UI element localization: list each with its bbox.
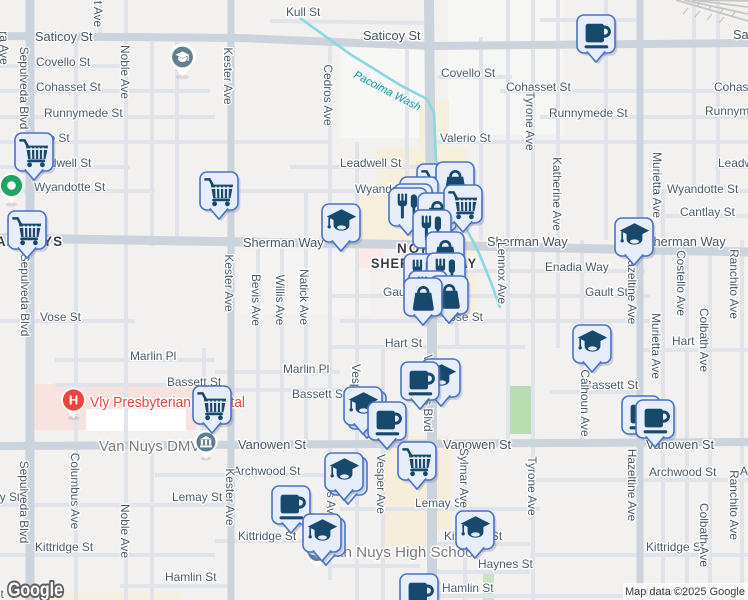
svg-text:Wyandotte St: Wyandotte St (34, 180, 106, 194)
svg-text:Hart St: Hart St (385, 336, 423, 350)
svg-text:Archwood St: Archwood St (649, 465, 717, 479)
svg-text:Bassett St: Bassett St (292, 387, 347, 401)
svg-text:Noble Ave: Noble Ave (118, 504, 132, 558)
svg-text:Saticoy St: Saticoy St (35, 29, 93, 44)
svg-text:Ranchito Ave: Ranchito Ave (727, 249, 741, 319)
svg-text:Saticoy St: Saticoy St (733, 27, 748, 42)
svg-text:Lemay St: Lemay St (172, 490, 223, 504)
svg-text:Enadia Way: Enadia Way (545, 260, 609, 274)
svg-text:Marlin Pl: Marlin Pl (283, 362, 329, 376)
svg-text:Kester Ave: Kester Ave (221, 47, 235, 105)
svg-text:Kester Ave: Kester Ave (223, 468, 237, 526)
svg-text:Cohasset St: Cohasset St (36, 80, 101, 94)
svg-text:Colbath Ave: Colbath Ave (697, 503, 711, 567)
svg-text:Valerio St: Valerio St (440, 131, 491, 145)
svg-text:Natick Ave: Natick Ave (297, 269, 311, 325)
svg-text:Kull St: Kull St (286, 5, 321, 19)
svg-text:Leadwell St: Leadwell St (340, 156, 402, 170)
svg-text:Covello St: Covello St (441, 66, 496, 80)
svg-text:Tyrone Ave: Tyrone Ave (523, 91, 537, 151)
svg-text:Tyrone Ave: Tyrone Ave (525, 456, 539, 516)
svg-text:Van Nuys High School: Van Nuys High School (326, 544, 477, 561)
svg-text:Saticoy St: Saticoy St (363, 28, 421, 43)
svg-text:Sepulveda Blvd: Sepulveda Blvd (17, 461, 31, 544)
svg-text:Vanowen St: Vanowen St (443, 437, 512, 452)
svg-text:Runnymede St: Runnymede St (44, 106, 123, 120)
svg-text:Sepulveda Blvd: Sepulveda Blvd (18, 254, 32, 337)
svg-text:Katherine Ave: Katherine Ave (550, 157, 564, 231)
svg-text:Costello Ave: Costello Ave (674, 250, 688, 316)
svg-text:Murietta Ave: Murietta Ave (650, 152, 664, 218)
svg-text:Hamlin St: Hamlin St (442, 581, 494, 595)
svg-text:Van Nuys DMV: Van Nuys DMV (99, 438, 200, 455)
svg-text:Colbath Ave: Colbath Ave (697, 308, 711, 372)
svg-text:Hamlin St: Hamlin St (165, 570, 217, 584)
svg-text:Sylmar Ave: Sylmar Ave (457, 448, 471, 508)
svg-text:Cohasset St: Cohasset St (714, 80, 748, 94)
svg-text:Cantlay St: Cantlay St (680, 205, 736, 219)
svg-text:t Ave: t Ave (91, 1, 105, 28)
svg-text:Bevis Ave: Bevis Ave (249, 274, 263, 326)
svg-text:Archwood St: Archwood St (233, 464, 301, 478)
svg-text:Kester Ave: Kester Ave (222, 254, 236, 312)
svg-text:Haynes St: Haynes St (478, 557, 534, 571)
svg-text:Sherman Way: Sherman Way (243, 235, 324, 250)
svg-text:Willis Ave: Willis Ave (273, 275, 287, 326)
svg-text:Cohasset St: Cohasset St (506, 80, 571, 94)
svg-text:Kittridge St: Kittridge St (35, 540, 94, 554)
svg-text:Sherman Way: Sherman Way (645, 234, 726, 249)
svg-text:Sepulveda Blvd: Sepulveda Blvd (17, 47, 31, 130)
svg-text:Calhoun Ave: Calhoun Ave (578, 369, 592, 437)
svg-text:Leadwell St: Leadwell St (718, 156, 748, 170)
svg-text:Marlin Pl: Marlin Pl (130, 349, 176, 363)
svg-text:Columbus Ave: Columbus Ave (68, 453, 82, 530)
svg-text:Runnymede St: Runnymede St (549, 106, 628, 120)
svg-text:Wyandotte St: Wyandotte St (667, 182, 739, 196)
svg-text:Runnymede St: Runnymede St (705, 104, 748, 118)
svg-text:Vesper Ave: Vesper Ave (374, 454, 388, 514)
svg-text:Google: Google (8, 579, 63, 600)
svg-text:Ranchito Ave: Ranchito Ave (727, 470, 741, 540)
svg-text:Vanowen St: Vanowen St (238, 437, 307, 452)
svg-text:Map data ©2025 Google: Map data ©2025 Google (625, 586, 745, 598)
svg-text:Kittridge St: Kittridge St (646, 540, 705, 554)
svg-text:H: H (69, 393, 78, 408)
svg-text:Noble Ave: Noble Ave (118, 45, 132, 99)
svg-text:Gault St: Gault St (585, 285, 629, 299)
svg-text:Murietta Ave: Murietta Ave (649, 313, 663, 379)
svg-text:Cedros Ave: Cedros Ave (321, 64, 335, 126)
svg-text:Hazeltine Ave: Hazeltine Ave (625, 449, 639, 522)
svg-text:Covello St: Covello St (36, 55, 91, 69)
svg-text:Lennox Ave: Lennox Ave (495, 242, 509, 304)
svg-text:ra Ave: ra Ave (0, 31, 11, 65)
svg-text:Vose St: Vose St (40, 310, 82, 324)
svg-text:Kittridge St: Kittridge St (238, 529, 297, 543)
